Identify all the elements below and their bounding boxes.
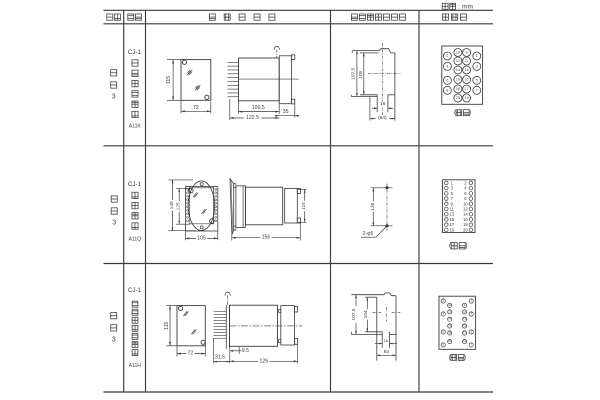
svg-text:1: 1 xyxy=(476,54,478,58)
svg-text:135: 135 xyxy=(370,202,376,210)
svg-text:9.5: 9.5 xyxy=(242,348,249,354)
svg-text:156: 156 xyxy=(262,235,271,241)
svg-text:105: 105 xyxy=(358,70,364,78)
svg-text:6: 6 xyxy=(446,78,448,82)
svg-text:19: 19 xyxy=(449,227,454,232)
svg-text:105: 105 xyxy=(197,235,206,241)
svg-text:104: 104 xyxy=(363,310,369,318)
svg-text:115: 115 xyxy=(301,202,307,210)
svg-text:20: 20 xyxy=(456,96,460,100)
svg-text:12: 12 xyxy=(456,59,460,63)
svg-text:CJ-1: CJ-1 xyxy=(128,181,142,188)
svg-text:11: 11 xyxy=(465,59,469,63)
svg-text:122.5: 122.5 xyxy=(246,115,259,121)
svg-text:72: 72 xyxy=(193,105,199,111)
svg-text:126: 126 xyxy=(259,358,268,364)
svg-text:64: 64 xyxy=(384,349,390,355)
svg-text:107.5: 107.5 xyxy=(351,67,357,79)
svg-text:CJ-1: CJ-1 xyxy=(128,287,142,294)
svg-text:13: 13 xyxy=(465,68,469,72)
svg-text:4: 4 xyxy=(446,64,448,68)
svg-text:10: 10 xyxy=(456,51,460,55)
svg-text:31.5: 31.5 xyxy=(215,355,225,361)
svg-text:2: 2 xyxy=(446,54,448,58)
svg-text:20: 20 xyxy=(463,227,468,232)
svg-text:3: 3 xyxy=(112,220,116,227)
svg-text:16: 16 xyxy=(456,78,460,82)
svg-text:): ) xyxy=(469,109,471,116)
svg-text:3: 3 xyxy=(476,64,478,68)
svg-text:A11K: A11K xyxy=(129,123,142,129)
svg-text:mm: mm xyxy=(462,4,473,11)
svg-text::: : xyxy=(458,3,460,10)
svg-text:): ) xyxy=(464,354,466,361)
svg-text:9: 9 xyxy=(466,51,468,55)
svg-text:A11Q: A11Q xyxy=(128,237,141,243)
svg-text:16: 16 xyxy=(384,339,388,343)
svg-text:7: 7 xyxy=(476,88,478,92)
svg-text:5: 5 xyxy=(476,78,478,82)
svg-text:19: 19 xyxy=(465,96,469,100)
svg-text:(64): (64) xyxy=(378,115,387,121)
svg-text:72: 72 xyxy=(188,351,194,357)
svg-text:35: 35 xyxy=(283,109,289,115)
svg-text:CJ-1: CJ-1 xyxy=(128,49,142,56)
svg-text:107.5: 107.5 xyxy=(351,308,357,320)
svg-text:149: 149 xyxy=(169,201,175,209)
svg-text:15: 15 xyxy=(465,78,469,82)
svg-text:100.5: 100.5 xyxy=(252,105,265,111)
svg-text:115: 115 xyxy=(164,321,170,329)
svg-text:125: 125 xyxy=(176,202,182,210)
svg-text:8: 8 xyxy=(446,88,448,92)
svg-text:A11H: A11H xyxy=(129,363,142,369)
svg-text:18: 18 xyxy=(456,87,460,91)
svg-text:): ) xyxy=(465,242,467,249)
svg-text:14: 14 xyxy=(456,68,460,72)
svg-text:3: 3 xyxy=(112,337,116,344)
svg-text:17: 17 xyxy=(465,87,469,91)
svg-text:115: 115 xyxy=(166,76,172,84)
svg-text:16: 16 xyxy=(380,101,386,107)
svg-text:3: 3 xyxy=(112,94,116,101)
svg-text:2-φ5: 2-φ5 xyxy=(363,231,374,237)
